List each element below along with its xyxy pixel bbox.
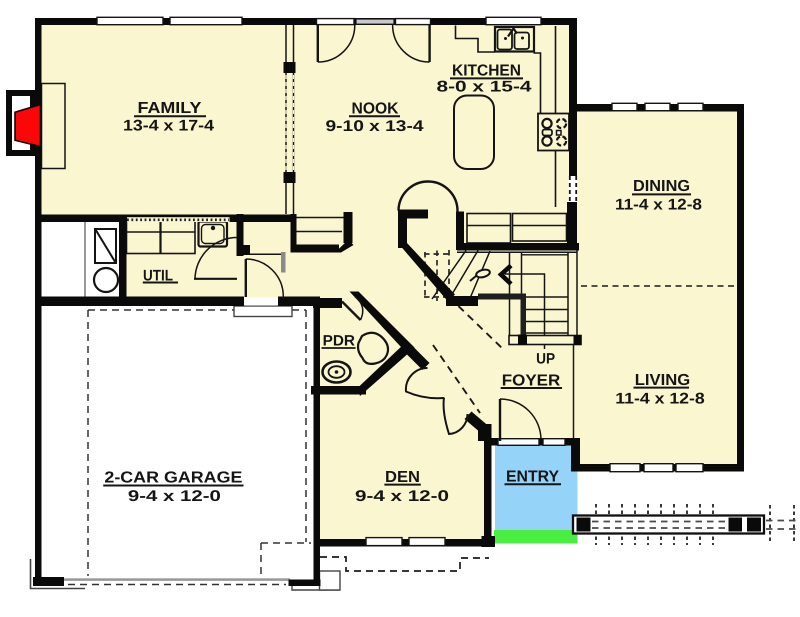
svg-text:PDR: PDR: [323, 333, 356, 350]
svg-text:9-4 x 12-0: 9-4 x 12-0: [355, 488, 449, 505]
svg-text:13-4 x 17-4: 13-4 x 17-4: [123, 118, 214, 135]
svg-text:2-CAR GARAGE: 2-CAR GARAGE: [104, 470, 242, 487]
svg-text:DINING: DINING: [633, 178, 690, 195]
svg-text:NOOK: NOOK: [352, 101, 399, 118]
svg-text:9-10 x 13-4: 9-10 x 13-4: [326, 118, 424, 135]
svg-text:ENTRY: ENTRY: [506, 469, 559, 486]
svg-text:FOYER: FOYER: [502, 372, 561, 389]
svg-text:FAMILY: FAMILY: [138, 100, 202, 117]
svg-text:8-0 x 15-4: 8-0 x 15-4: [437, 79, 532, 96]
svg-text:KITCHEN: KITCHEN: [452, 63, 521, 80]
svg-text:LIVING: LIVING: [635, 372, 691, 389]
svg-text:UP: UP: [536, 351, 555, 368]
svg-text:11-4 x 12-8: 11-4 x 12-8: [615, 390, 705, 407]
svg-text:9-4 x 12-0: 9-4 x 12-0: [128, 488, 221, 505]
svg-text:11-4 x 12-8: 11-4 x 12-8: [615, 197, 702, 214]
svg-text:DEN: DEN: [385, 469, 420, 486]
